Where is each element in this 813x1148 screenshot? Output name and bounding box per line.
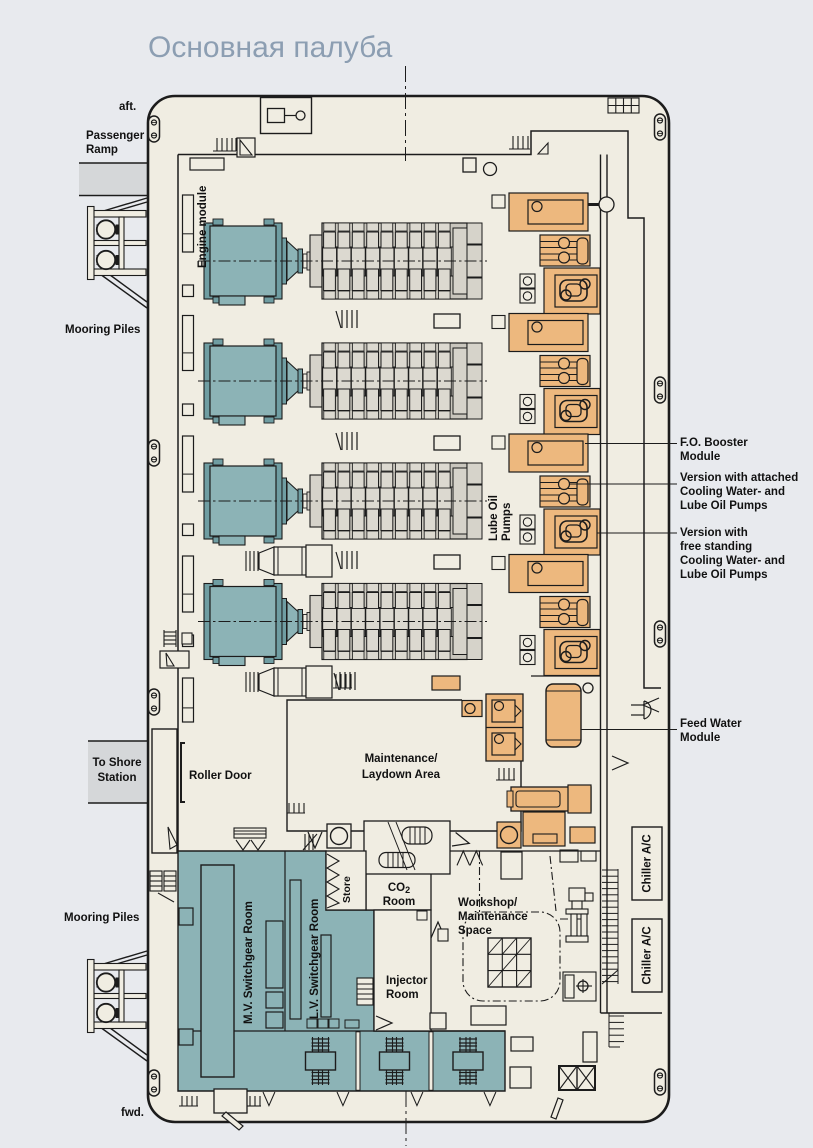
svg-text:M.V. Switchgear Room: M.V. Switchgear Room xyxy=(243,901,255,1024)
svg-text:L.V. Switchgear Room: L.V. Switchgear Room xyxy=(309,899,321,1019)
svg-text:Maintenance/: Maintenance/ xyxy=(365,753,439,765)
svg-text:Lube Oil Pumps: Lube Oil Pumps xyxy=(680,569,768,581)
svg-text:Mooring Piles: Mooring Piles xyxy=(64,912,139,924)
svg-text:To Shore: To Shore xyxy=(93,757,142,769)
svg-text:Mooring Piles: Mooring Piles xyxy=(65,324,140,336)
svg-text:aft.: aft. xyxy=(119,101,136,113)
svg-text:Laydown Area: Laydown Area xyxy=(362,769,441,781)
svg-text:Ramp: Ramp xyxy=(86,144,118,156)
svg-text:Station: Station xyxy=(98,772,137,784)
svg-text:Основная палуба: Основная палуба xyxy=(148,31,393,64)
svg-text:Chiller A/C: Chiller A/C xyxy=(642,926,654,984)
svg-text:fwd.: fwd. xyxy=(121,1107,144,1119)
svg-text:Passenger: Passenger xyxy=(86,130,145,142)
svg-text:Lube Oil: Lube Oil xyxy=(488,495,500,541)
svg-text:Maintenance: Maintenance xyxy=(458,911,528,923)
svg-text:Room: Room xyxy=(386,989,419,1001)
svg-text:Version with: Version with xyxy=(680,527,748,539)
svg-text:Room: Room xyxy=(383,896,416,908)
svg-text:Cooling Water- and: Cooling Water- and xyxy=(680,486,785,498)
svg-text:Feed Water: Feed Water xyxy=(680,718,742,730)
svg-text:Injector: Injector xyxy=(386,975,428,987)
svg-text:Roller Door: Roller Door xyxy=(189,770,252,782)
svg-text:Module: Module xyxy=(680,732,720,744)
svg-text:Engine module: Engine module xyxy=(197,186,209,268)
svg-text:Chiller A/C: Chiller A/C xyxy=(642,834,654,892)
svg-text:Version with attached: Version with attached xyxy=(680,472,798,484)
svg-text:Cooling Water- and: Cooling Water- and xyxy=(680,555,785,567)
svg-text:F.O. Booster: F.O. Booster xyxy=(680,437,748,449)
svg-text:Pumps: Pumps xyxy=(501,503,513,541)
svg-text:Module: Module xyxy=(680,451,720,463)
svg-text:Lube Oil Pumps: Lube Oil Pumps xyxy=(680,500,768,512)
svg-text:Store: Store xyxy=(341,876,353,903)
svg-text:Workshop/: Workshop/ xyxy=(458,897,518,909)
svg-text:free standing: free standing xyxy=(680,541,752,553)
